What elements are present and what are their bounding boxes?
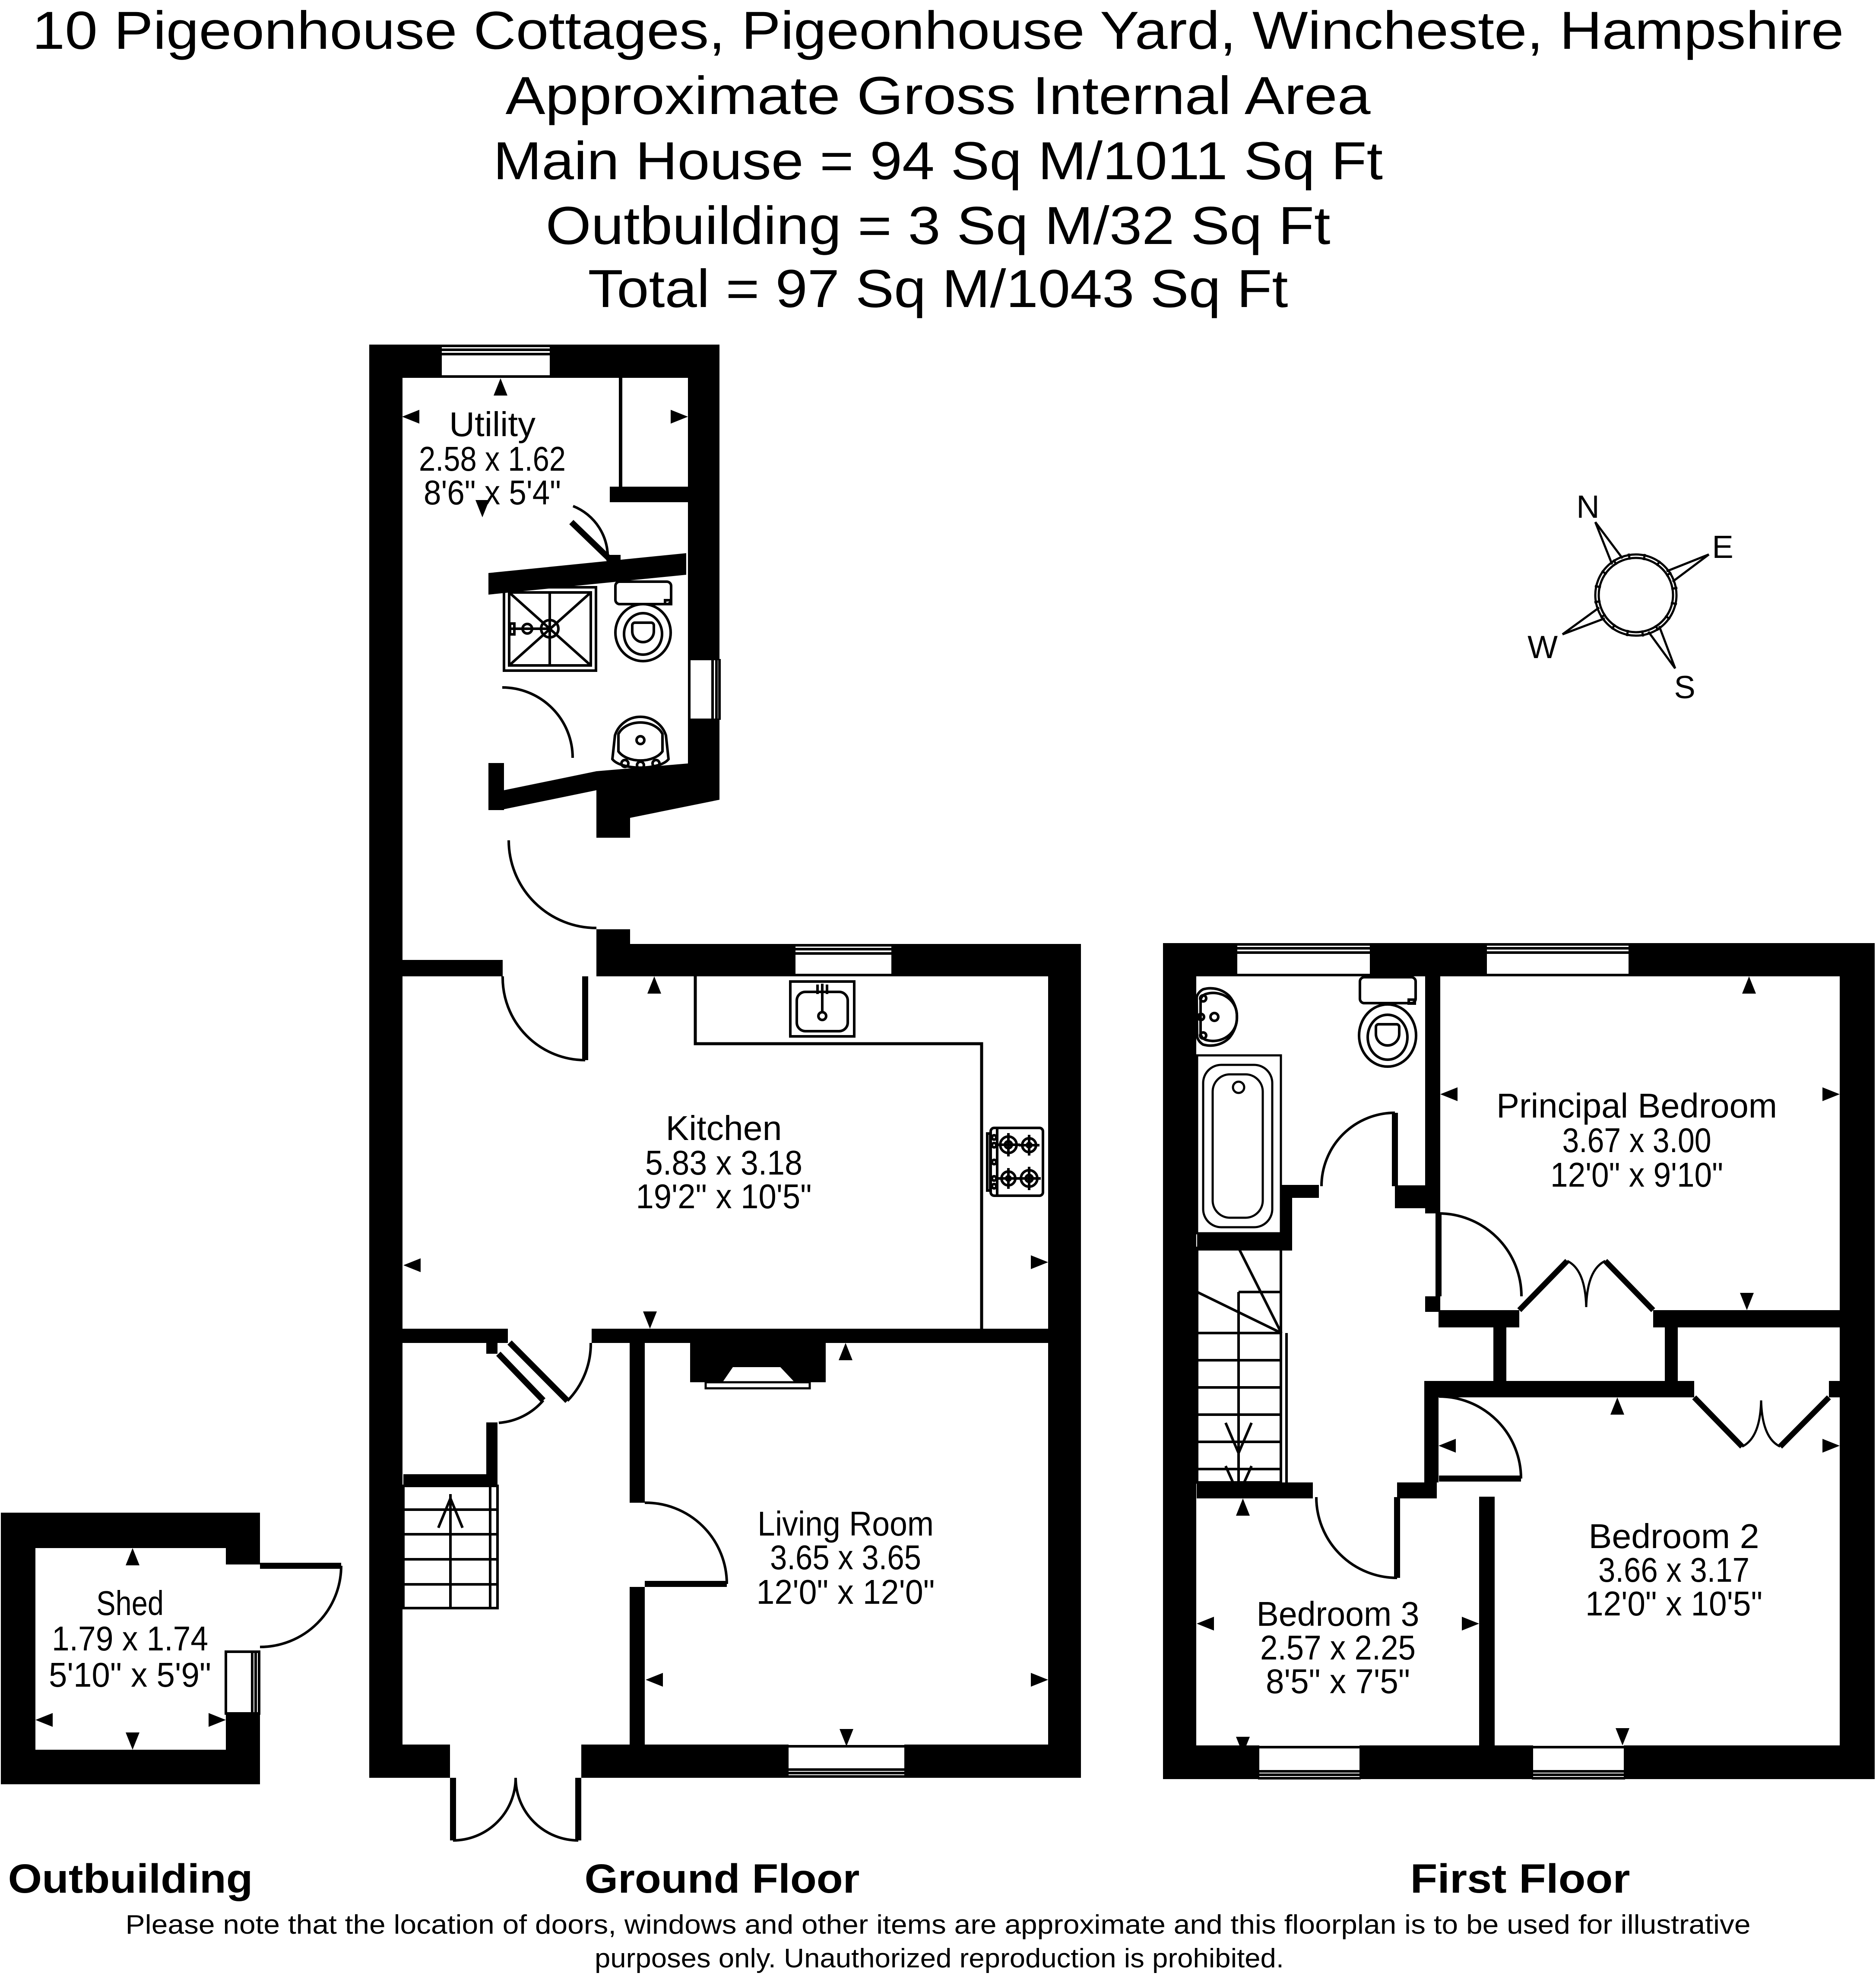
svg-text:Approximate Gross Internal Are: Approximate Gross Internal Area	[506, 66, 1371, 126]
svg-text:Living Room: Living Room	[757, 1504, 934, 1543]
svg-text:Outbuilding = 3 Sq M/32 Sq Ft: Outbuilding = 3 Sq M/32 Sq Ft	[546, 196, 1331, 256]
svg-text:S: S	[1674, 669, 1695, 705]
svg-text:First Floor: First Floor	[1410, 1856, 1630, 1902]
svg-text:8'5" x 7'5": 8'5" x 7'5"	[1266, 1662, 1410, 1700]
svg-text:19'2" x 10'5": 19'2" x 10'5"	[636, 1177, 812, 1216]
svg-text:2.58 x 1.62: 2.58 x 1.62	[419, 440, 566, 478]
svg-text:2.57 x 2.25: 2.57 x 2.25	[1260, 1628, 1416, 1667]
svg-text:Please note that the location: Please note that the location of doors, …	[126, 1910, 1751, 1940]
svg-text:N: N	[1576, 489, 1599, 525]
svg-text:Bedroom 2: Bedroom 2	[1589, 1517, 1759, 1555]
svg-text:12'0" x 9'10": 12'0" x 9'10"	[1550, 1156, 1723, 1194]
svg-text:E: E	[1712, 529, 1733, 565]
svg-text:10 Pigeonhouse Cottages, Pigeo: 10 Pigeonhouse Cottages, Pigeonhouse Yar…	[32, 1, 1844, 60]
svg-text:3.66 x 3.17: 3.66 x 3.17	[1598, 1551, 1749, 1589]
svg-text:3.65 x 3.65: 3.65 x 3.65	[770, 1538, 921, 1577]
svg-text:Ground Floor: Ground Floor	[585, 1856, 860, 1902]
svg-text:Total = 97 Sq M/1043 Sq Ft: Total = 97 Sq M/1043 Sq Ft	[588, 259, 1288, 319]
svg-text:Outbuilding: Outbuilding	[8, 1856, 253, 1902]
svg-text:Bedroom 3: Bedroom 3	[1257, 1595, 1420, 1633]
svg-text:purposes only. Unauthorized re: purposes only. Unauthorized reproduction…	[595, 1944, 1284, 1973]
svg-text:3.67 x 3.00: 3.67 x 3.00	[1562, 1121, 1711, 1159]
svg-text:Principal Bedroom: Principal Bedroom	[1496, 1086, 1777, 1125]
svg-text:Shed: Shed	[96, 1584, 164, 1622]
svg-text:12'0" x 10'5": 12'0" x 10'5"	[1585, 1584, 1762, 1623]
svg-text:5.83 x 3.18: 5.83 x 3.18	[645, 1143, 802, 1182]
svg-text:Utility: Utility	[449, 405, 536, 443]
svg-text:8'6" x 5'4": 8'6" x 5'4"	[424, 473, 561, 512]
svg-text:W: W	[1527, 629, 1558, 665]
svg-text:5'10" x 5'9": 5'10" x 5'9"	[49, 1656, 211, 1694]
svg-text:1.79 x 1.74: 1.79 x 1.74	[52, 1619, 208, 1658]
svg-text:Main House = 94 Sq M/1011 Sq F: Main House = 94 Sq M/1011 Sq Ft	[493, 131, 1383, 191]
svg-text:Kitchen: Kitchen	[666, 1109, 782, 1147]
svg-text:12'0" x 12'0": 12'0" x 12'0"	[757, 1573, 935, 1611]
